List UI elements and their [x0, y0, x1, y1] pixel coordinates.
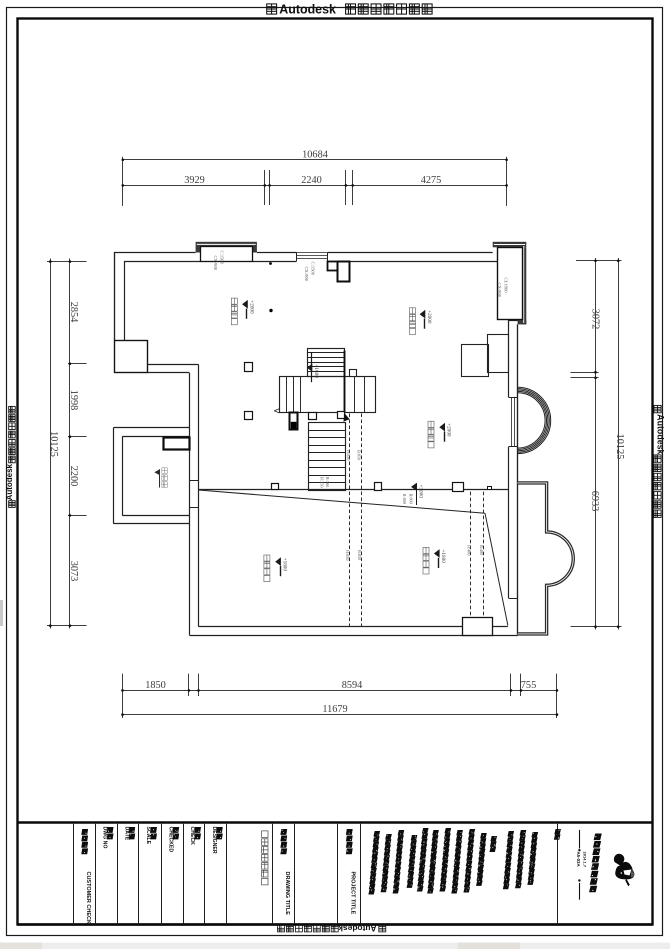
svg-text:DRAWING TITLE: DRAWING TITLE	[284, 872, 290, 916]
svg-text:1850: 1850	[145, 680, 166, 691]
svg-text:H:400: H:400	[467, 545, 472, 555]
svg-text:DESIGNER: DESIGNER	[211, 827, 217, 854]
svg-text:C:1500: C:1500	[220, 251, 225, 265]
svg-text:H:800: H:800	[402, 494, 407, 504]
svg-text:+2000: +2000	[426, 310, 432, 324]
svg-text:1998: 1998	[68, 390, 79, 411]
svg-text:2014.1.7: 2014.1.7	[583, 852, 588, 868]
svg-text:H:850: H:850	[345, 550, 350, 560]
svg-text:B:800: B:800	[409, 494, 414, 504]
svg-text:B:300: B:300	[325, 477, 330, 489]
svg-text:B:850: B:850	[357, 450, 362, 460]
svg-text:3073: 3073	[68, 561, 79, 582]
svg-text:8594: 8594	[342, 680, 363, 691]
svg-text:H:850: H:850	[346, 450, 351, 460]
svg-text:3072: 3072	[590, 309, 601, 330]
svg-text:CX:900: CX:900	[213, 256, 218, 271]
svg-text:2200: 2200	[68, 466, 79, 487]
svg-text:10125: 10125	[48, 431, 59, 457]
svg-text:755: 755	[521, 680, 536, 691]
svg-text:4275: 4275	[421, 175, 442, 186]
svg-text:+1800: +1800	[313, 365, 319, 379]
svg-text:+1800: +1800	[281, 558, 287, 572]
svg-text:Autodesk: Autodesk	[656, 414, 666, 454]
svg-text:C:1500: C:1500	[310, 262, 315, 276]
svg-text:B:400: B:400	[479, 545, 484, 555]
svg-text:B:850: B:850	[357, 550, 362, 560]
svg-text:SCALE: SCALE	[145, 827, 151, 845]
svg-text:10684: 10684	[302, 149, 328, 160]
svg-text:CX:900: CX:900	[304, 267, 309, 282]
svg-text:H:150: H:150	[320, 477, 325, 489]
svg-text:DATE: DATE	[123, 827, 129, 841]
svg-text:CHECKED: CHECKED	[167, 827, 173, 853]
svg-text:+2000: +2000	[446, 423, 452, 437]
svg-text:10125: 10125	[614, 434, 625, 460]
svg-text:Autodesk: Autodesk	[279, 2, 336, 16]
svg-text:+3000: +3000	[418, 485, 424, 499]
svg-text:DWG NO: DWG NO	[102, 827, 108, 849]
svg-text:3929: 3929	[184, 175, 205, 186]
svg-text:+2000: +2000	[248, 300, 254, 314]
svg-text:CX:900: CX:900	[497, 283, 502, 298]
svg-text:11679: 11679	[322, 704, 347, 715]
svg-text:Autodesk: Autodesk	[5, 463, 14, 500]
svg-text:CHECK: CHECK	[189, 827, 195, 846]
svg-text:CUSTOMER CHECK: CUSTOMER CHECK	[85, 872, 91, 924]
svg-text:A5-03A: A5-03A	[576, 852, 581, 868]
svg-text:CI:1900: CI:1900	[504, 278, 509, 294]
svg-text:2240: 2240	[301, 175, 322, 186]
svg-text:6933: 6933	[589, 491, 600, 512]
svg-text:2854: 2854	[68, 302, 79, 323]
svg-text:+1800: +1800	[440, 550, 446, 564]
svg-text:PROJECT TITLE: PROJECT TITLE	[350, 872, 356, 915]
